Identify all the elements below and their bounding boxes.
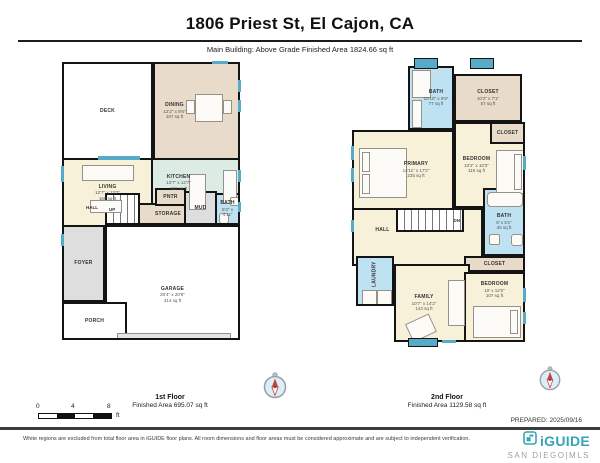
room-foyer: FOYER <box>62 225 105 302</box>
window-marker <box>238 202 241 212</box>
room-area: 107 sq ft <box>163 114 185 120</box>
page-subtitle: Main Building: Above Grade Finished Area… <box>0 45 600 54</box>
pillow-icon <box>362 152 370 172</box>
hall-label: HALL <box>86 205 98 210</box>
room-closet-3: CLOSET <box>464 256 525 272</box>
room-primary: PRIMARY 14'11" x 17'2" 225 sq ft <box>352 130 454 210</box>
pillow-icon <box>514 154 522 190</box>
washer-icon <box>362 290 377 305</box>
iguide-logo: iGUIDE SAN DIEGO|MLS <box>508 431 590 460</box>
staircase-down: DN <box>396 208 464 232</box>
bathtub-icon <box>487 192 523 207</box>
room-closet-primary: CLOSET 10'2" x 7'1" 57 sq ft <box>454 74 522 122</box>
room-dims: 10'2" x 10'3" <box>463 163 491 169</box>
room-label: LIVING <box>95 184 120 190</box>
room-dims: 13'7" x 12'7" <box>166 180 191 186</box>
floor-area: Finished Area 1129.58 sq ft <box>377 402 517 409</box>
window-marker <box>61 166 64 182</box>
room-dims: 10'7" x 14'2" <box>412 301 437 307</box>
window-marker <box>98 156 140 160</box>
room-label: HALL <box>375 227 389 233</box>
iguide-logo-icon <box>523 431 537 450</box>
scale-unit: ft <box>116 412 120 419</box>
floor-2-caption: 2nd Floor Finished Area 1129.58 sq ft <box>377 394 517 409</box>
window-marker <box>351 220 354 232</box>
dining-table-icon <box>195 94 223 122</box>
deck-marker <box>470 58 494 69</box>
room-label: PORCH <box>85 318 104 324</box>
room-label: BATH <box>496 213 512 219</box>
balcony-marker <box>408 338 438 347</box>
room-area: 40 sq ft <box>496 225 512 231</box>
compass-icon <box>262 371 288 404</box>
page-title: 1806 Priest St, El Cajon, CA <box>0 14 600 34</box>
scale-tick: 8 <box>107 403 111 410</box>
pillow-icon <box>362 174 370 194</box>
room-deck: DECK <box>62 62 153 160</box>
toilet-icon <box>219 213 229 224</box>
scale-tick: 4 <box>71 403 75 410</box>
room-label: BEDROOM <box>481 281 509 287</box>
scale-tick: 0 <box>36 403 40 410</box>
floorplan-page: 1806 Priest St, El Cajon, CA Main Buildi… <box>0 0 600 463</box>
logo-subtext: SAN DIEGO|MLS <box>508 451 590 460</box>
scale-bar: 0 4 8 ft <box>34 403 144 425</box>
sofa-icon <box>448 280 465 326</box>
window-marker <box>523 312 526 324</box>
room-label: BEDROOM <box>463 156 491 162</box>
scale-bar-segments <box>38 413 112 419</box>
title-divider <box>18 40 582 42</box>
toilet-icon <box>511 234 523 246</box>
floorplan-2nd-floor: BATH 10'10" x 9'9" 77 sq ft CLOSET 10'2"… <box>352 60 530 345</box>
pillow-icon <box>510 310 518 334</box>
room-area: 57 sq ft <box>477 101 499 107</box>
room-label: GARAGE <box>160 286 185 292</box>
room-dims: 20'4" x 20'8" <box>160 292 185 298</box>
room-label: STORAGE <box>155 211 181 217</box>
staircase-up: UP <box>105 193 140 225</box>
room-label: DINING <box>163 102 185 108</box>
room-label: CLOSET <box>477 89 499 95</box>
room-area: 414 sq ft <box>160 298 185 304</box>
window-marker <box>238 100 241 112</box>
room-bath-2: BATH 8' x 5'1" 40 sq ft <box>483 188 525 256</box>
chair-icon <box>186 100 195 114</box>
room-dining: DINING 12'2" x 9'6" 107 sq ft <box>153 62 240 160</box>
compass-icon <box>538 365 562 396</box>
room-dims: 12'2" x 9'6" <box>163 109 185 115</box>
chair-icon <box>223 100 232 114</box>
room-label: CLOSET <box>484 261 505 267</box>
room-label: DECK <box>100 108 115 114</box>
floorplan-1st-floor: DECK DINING 12'2" x 9'6" 107 sq ft LIVIN… <box>62 62 240 340</box>
room-dims: 10'2" x 7'1" <box>477 96 499 102</box>
room-area: 77 sq ft <box>424 101 449 107</box>
window-marker <box>442 340 456 343</box>
window-marker <box>238 170 241 182</box>
prepared-date: PREPARED: 2025/09/16 <box>511 417 582 424</box>
garage-door-icon <box>117 333 231 339</box>
room-area: 143 sq ft <box>412 306 437 312</box>
stairs-up-label: UP <box>109 207 115 212</box>
iguide-logo-text: iGUIDE <box>540 433 590 449</box>
window-marker <box>351 168 354 182</box>
window-marker <box>523 156 526 170</box>
window-marker <box>523 288 526 302</box>
window-marker <box>61 234 64 246</box>
room-bath-primary: BATH 10'10" x 9'9" 77 sq ft <box>408 66 454 130</box>
footer-divider <box>0 427 600 430</box>
room-label: FAMILY <box>412 294 437 300</box>
room-label: FOYER <box>74 260 92 266</box>
room-dims: 8' x 5'1" <box>496 220 512 226</box>
room-area: 107 sq ft <box>481 293 509 299</box>
floor-name: 1st Floor <box>100 394 240 401</box>
floor-name: 2nd Floor <box>377 394 517 401</box>
window-marker <box>238 80 241 92</box>
dryer-icon <box>377 290 392 305</box>
shower-icon <box>412 70 431 98</box>
sofa-icon <box>82 165 134 181</box>
room-laundry: LAUNDRY <box>356 256 394 306</box>
sink-icon <box>489 234 500 245</box>
room-family: FAMILY 10'7" x 14'2" 143 sq ft <box>394 264 470 342</box>
window-marker <box>351 146 354 160</box>
room-bedroom-2: BEDROOM 10' x 12'5" 107 sq ft <box>464 272 525 342</box>
room-area: 119 sq ft <box>463 168 491 174</box>
deck-marker <box>414 58 438 69</box>
room-label: KITCHEN <box>166 174 191 180</box>
room-dims: 10' x 12'5" <box>481 288 509 294</box>
room-pantry: PNTR <box>155 188 186 206</box>
window-marker <box>212 61 228 64</box>
room-closet-2: CLOSET <box>490 122 525 144</box>
room-label: LAUNDRY <box>372 261 378 287</box>
disclaimer-text: White regions are excluded from total fl… <box>23 436 523 442</box>
room-label: PNTR <box>163 194 177 200</box>
room-label: CLOSET <box>497 130 518 136</box>
stairs-down-label: DN <box>454 218 461 223</box>
kitchen-island-icon <box>189 174 206 210</box>
vanity-icon <box>412 100 422 128</box>
